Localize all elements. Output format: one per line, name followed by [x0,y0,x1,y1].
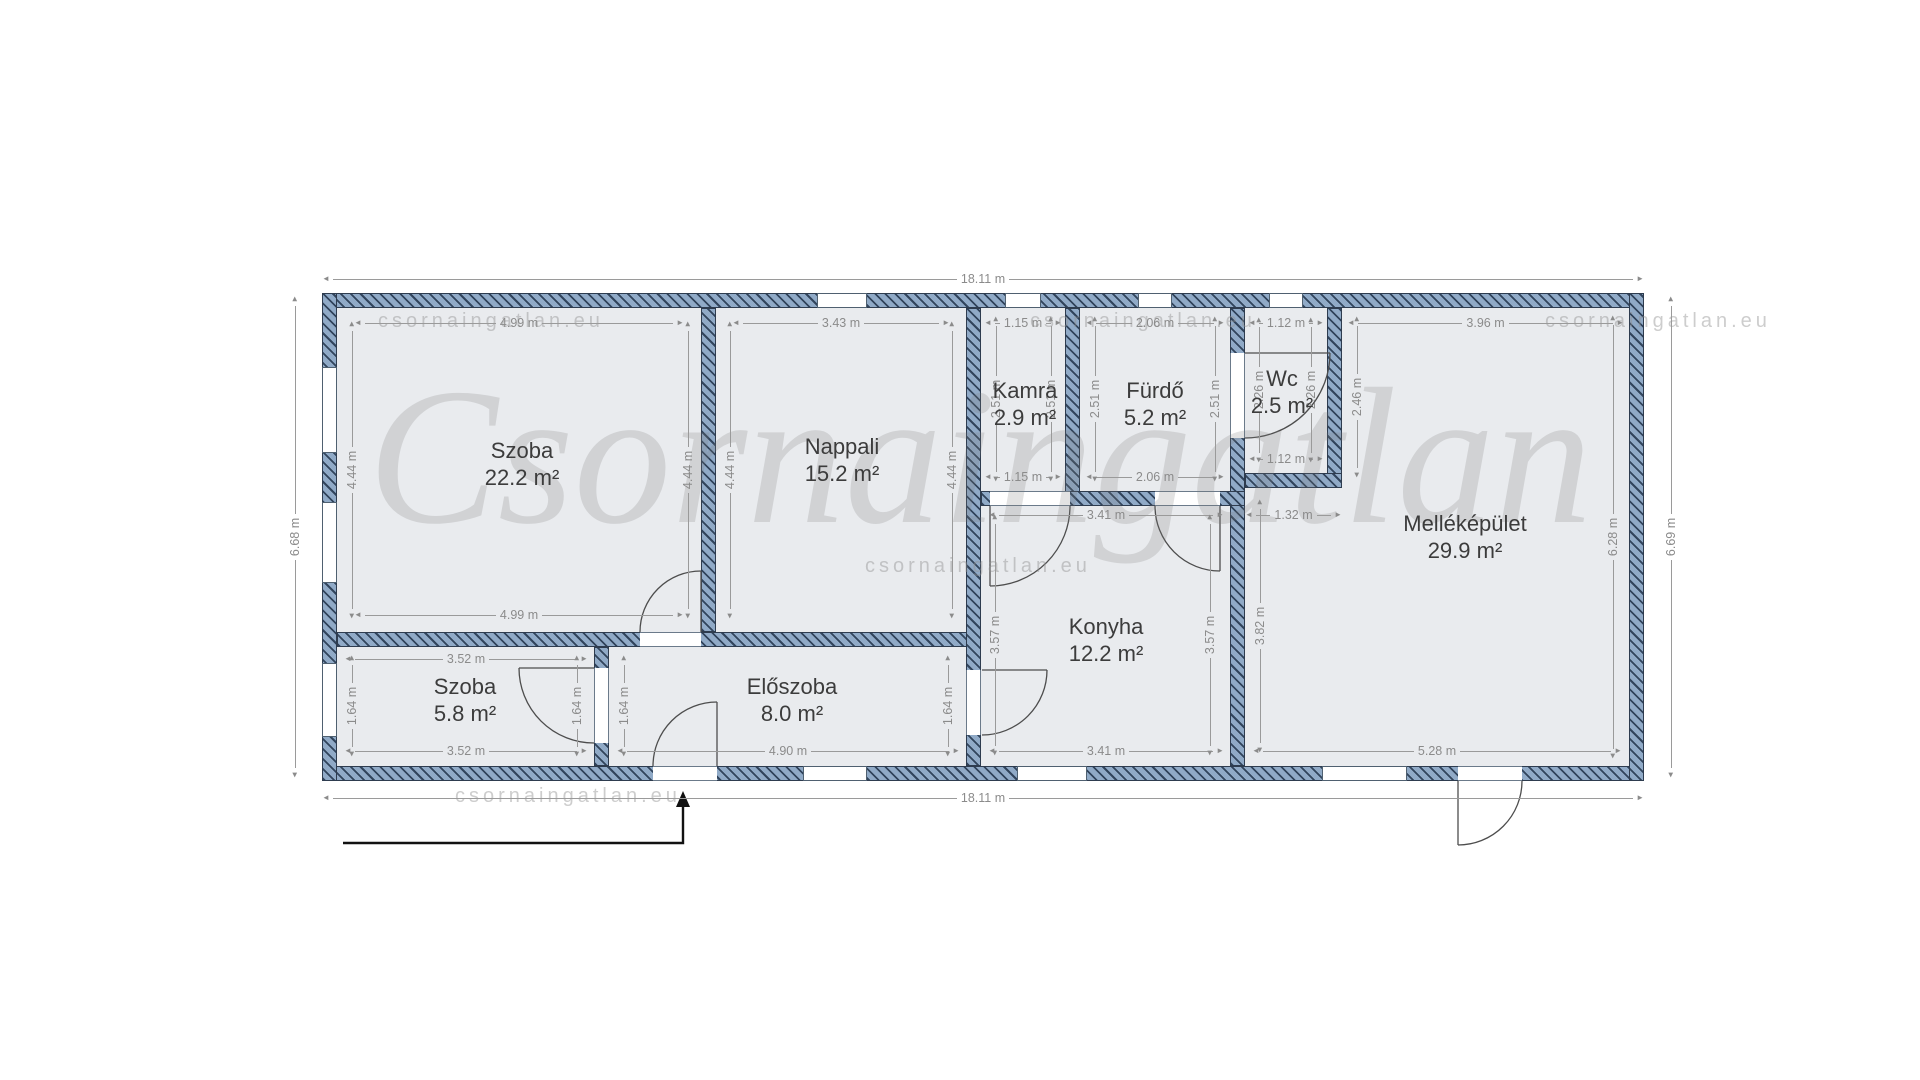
dim-total-bottom: ◄18.11 m► [322,790,1644,806]
wall-exterior-top [322,293,1644,308]
window [803,766,867,781]
window [817,293,867,308]
dim: ◄4.99 m► [354,315,684,331]
dim: ◄1.64 m► [616,654,632,758]
wall-wc-bottom [1245,473,1342,488]
door-opening [640,632,701,647]
door-opening [1155,491,1220,506]
wall-kamra-furdo [1065,308,1080,506]
dim: ◄3.52 m► [344,651,588,667]
dim: ◄6.28 m► [1605,314,1621,760]
room-label-furdo: Fürdő5.2 m² [1124,378,1186,432]
room-label-konyha: Konyha12.2 m² [1069,614,1144,668]
room-label-szoba-58: Szoba5.8 m² [434,674,496,728]
dim: ◄2.46 m► [1349,315,1365,479]
dim: ◄3.41 m► [988,507,1224,523]
window [1005,293,1041,308]
dim: ◄3.41 m► [988,743,1224,759]
room-label-nappali: Nappali15.2 m² [805,434,880,488]
door-opening [1230,353,1245,438]
floor-plan: ◄18.11 m► ◄18.11 m► ◄6.68 m► ◄6.69 m► ◄4… [322,293,1644,781]
dim-total-top: ◄18.11 m► [322,271,1644,287]
dim: ◄3.43 m► [732,315,950,331]
dim: ◄4.44 m► [944,320,960,620]
door-opening [594,668,609,743]
wall-szoba-nappali [701,308,716,632]
dim: ◄1.64 m► [940,654,956,758]
dim: ◄1.64 m► [569,654,585,758]
door-opening-entrance [653,766,717,781]
dim: ◄4.99 m► [354,607,684,623]
window [322,502,337,583]
window [322,367,337,453]
window [1269,293,1303,308]
wall-exterior-bottom [322,766,1644,781]
dim: ◄3.57 m► [1202,513,1218,757]
door-opening [1458,766,1522,781]
dim: ◄5.28 m► [1252,743,1622,759]
dim: ◄4.44 m► [680,320,696,620]
room-label-kamra: Kamra2.9 m² [993,378,1058,432]
dim: ◄3.96 m► [1347,315,1624,331]
dim: ◄3.82 m► [1252,498,1268,754]
window [322,663,337,737]
dim: ◄3.52 m► [344,743,588,759]
room-label-wc: Wc2.5 m² [1251,366,1313,420]
wall-wc-mellek [1327,308,1342,488]
dim: ◄2.51 m► [1087,315,1103,483]
room-label-mellekepulet: Melléképület29.9 m² [1403,511,1527,565]
dim: ◄3.57 m► [987,513,1003,757]
door-opening [990,491,1070,506]
dim: ◄2.06 m► [1085,315,1225,331]
dim: ◄4.44 m► [722,320,738,620]
dim: ◄4.90 m► [616,743,960,759]
dim-total-left: ◄6.68 m► [287,295,303,779]
dim: ◄2.06 m► [1085,469,1225,485]
window [1138,293,1172,308]
window [1017,766,1087,781]
dim: ◄2.51 m► [1207,315,1223,483]
door-opening [966,670,981,735]
room-label-szoba-22: Szoba22.2 m² [485,438,560,492]
dim: ◄4.44 m► [344,320,360,620]
room-label-eloszoba: Előszoba8.0 m² [747,674,838,728]
dim: ◄1.64 m► [344,654,360,758]
window [1322,766,1407,781]
wall-exterior-right [1629,293,1644,781]
dim-total-right: ◄6.69 m► [1663,295,1679,779]
floor-plan-canvas: ◄18.11 m► ◄18.11 m► ◄6.68 m► ◄6.69 m► ◄4… [0,0,1920,1080]
